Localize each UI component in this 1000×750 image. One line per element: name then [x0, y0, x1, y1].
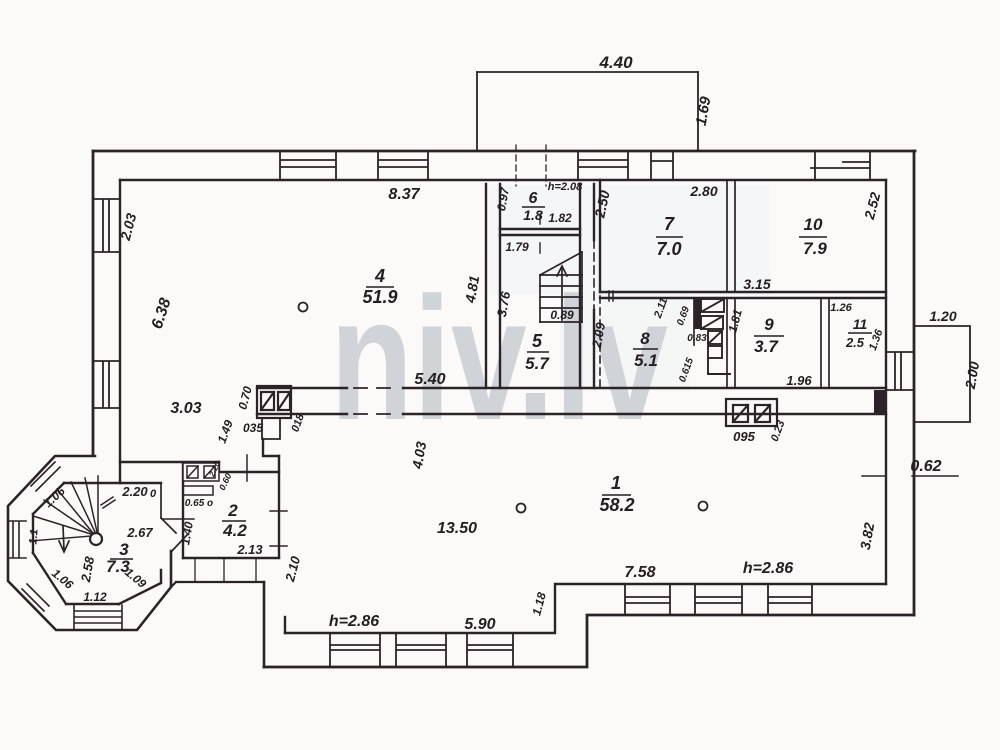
- svg-text:10: 10: [804, 215, 823, 234]
- svg-text:2.13: 2.13: [236, 542, 263, 557]
- svg-text:4.2: 4.2: [222, 521, 247, 540]
- svg-text:6: 6: [529, 190, 538, 207]
- svg-text:1.79: 1.79: [505, 240, 529, 254]
- svg-text:0.89: 0.89: [550, 308, 574, 322]
- svg-text:8.37: 8.37: [388, 186, 420, 203]
- svg-text:5.90: 5.90: [464, 616, 495, 633]
- svg-text:11: 11: [853, 316, 868, 332]
- svg-text:2.80: 2.80: [689, 183, 717, 199]
- svg-text:8: 8: [640, 329, 650, 348]
- svg-text:1.8: 1.8: [523, 207, 543, 223]
- svg-text:2.20: 2.20: [121, 484, 148, 499]
- svg-text:1: 1: [611, 473, 621, 493]
- svg-text:0.65 o: 0.65 o: [185, 498, 213, 509]
- svg-text:5.1: 5.1: [634, 351, 658, 370]
- svg-text:7.9: 7.9: [803, 239, 827, 258]
- svg-text:7.0: 7.0: [656, 239, 681, 259]
- svg-text:9: 9: [764, 315, 774, 334]
- svg-text:2: 2: [227, 501, 238, 520]
- svg-text:1.26: 1.26: [830, 302, 852, 314]
- svg-text:2.67: 2.67: [126, 525, 153, 540]
- svg-text:1.12: 1.12: [83, 590, 107, 604]
- svg-text:h=2.86: h=2.86: [329, 613, 379, 630]
- svg-text:0.83: 0.83: [687, 333, 707, 344]
- svg-text:3.7: 3.7: [754, 337, 779, 356]
- svg-text:3.15: 3.15: [743, 276, 770, 292]
- svg-text:h=2.86: h=2.86: [743, 560, 793, 577]
- svg-text:0.62: 0.62: [910, 458, 941, 475]
- svg-text:5.40: 5.40: [414, 371, 445, 388]
- svg-text:7: 7: [664, 214, 675, 234]
- svg-text:5.7: 5.7: [525, 354, 550, 373]
- svg-text:7.58: 7.58: [624, 564, 655, 581]
- svg-text:1.82: 1.82: [548, 211, 572, 225]
- svg-text:3.03: 3.03: [170, 400, 201, 417]
- svg-text:095: 095: [733, 429, 755, 444]
- svg-text:58.2: 58.2: [599, 495, 634, 515]
- svg-text:1.20: 1.20: [929, 308, 956, 324]
- svg-text:51.9: 51.9: [362, 287, 397, 307]
- svg-text:4: 4: [374, 266, 385, 286]
- svg-text:0: 0: [150, 488, 157, 500]
- svg-text:5: 5: [532, 331, 543, 351]
- svg-text:h=2.08: h=2.08: [548, 181, 583, 193]
- svg-text:035: 035: [243, 421, 263, 435]
- svg-text:2.5: 2.5: [845, 335, 865, 350]
- svg-text:1.1: 1.1: [27, 529, 40, 545]
- svg-text:4.40: 4.40: [598, 53, 633, 72]
- svg-text:1.96: 1.96: [786, 373, 812, 388]
- svg-text:13.50: 13.50: [437, 520, 477, 537]
